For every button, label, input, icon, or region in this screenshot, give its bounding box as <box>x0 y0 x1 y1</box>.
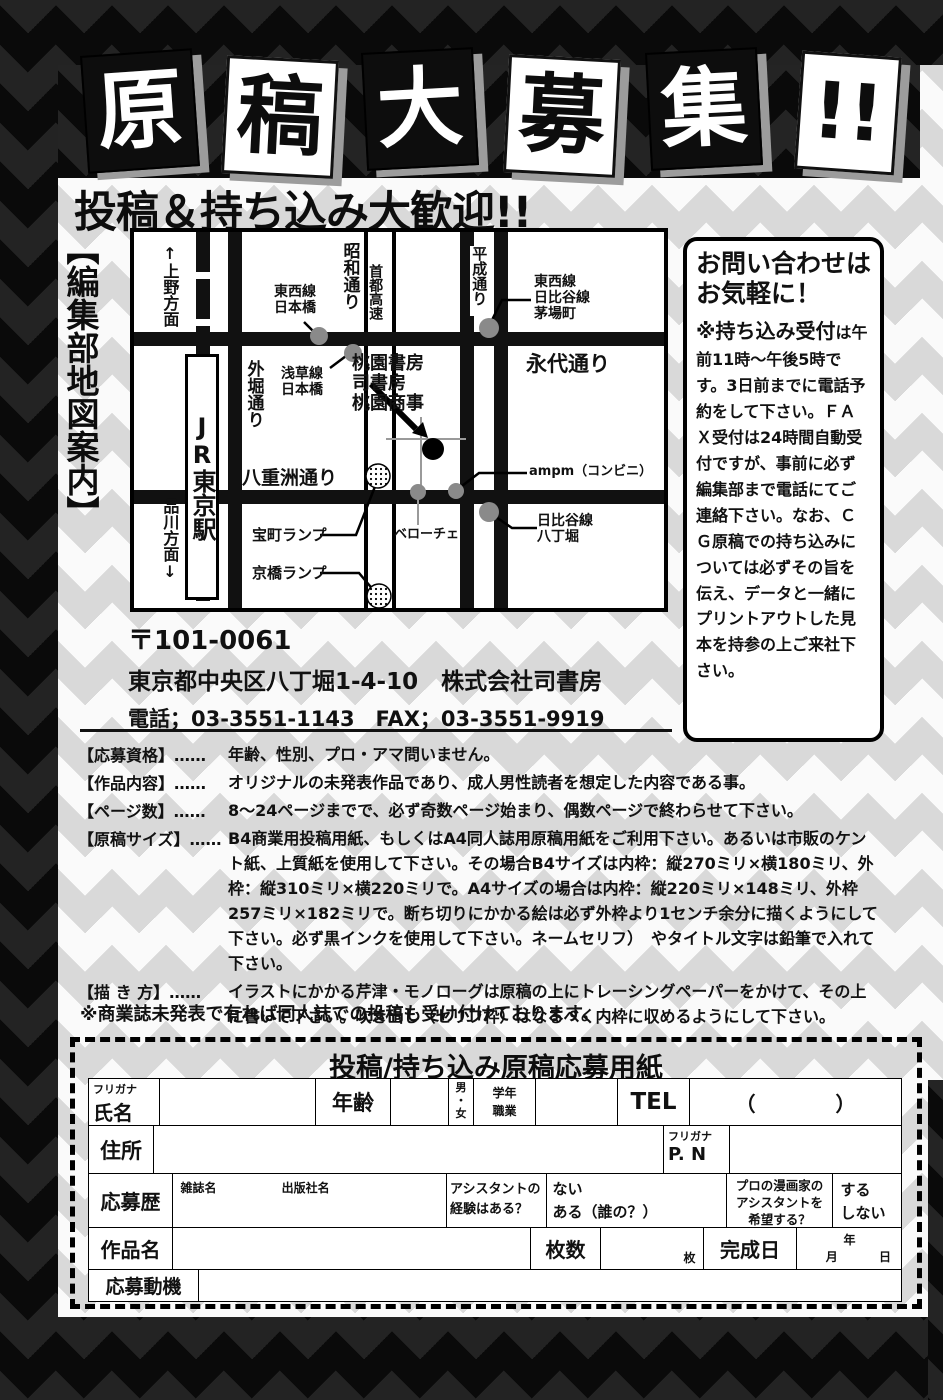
name-label: 氏名 <box>93 1097 155 1126</box>
title-char-4: 募 <box>517 71 607 161</box>
map-label-eitai-dori: 永代通り <box>526 352 610 376</box>
title-char-1: 原 <box>94 65 186 157</box>
spec-text: オリジナルの未発表作品であり、成人男性読者を想定した内容である事。 <box>228 770 882 795</box>
assistant-question-cell: アシスタントの 経験はある？ <box>446 1173 547 1228</box>
title-char-5: 集 <box>659 64 749 154</box>
grade-job-input-cell[interactable] <box>535 1078 618 1126</box>
spec-text: B4商業用投稿用紙、もしくはA4同人誌用原稿用紙をご利用下さい。あるいは市販のケ… <box>228 826 882 976</box>
title-char-6: !! <box>810 72 886 155</box>
title-card-6: !! <box>794 51 902 176</box>
work-title-input-cell[interactable] <box>172 1227 532 1271</box>
map-label-shuto-kosoku: 首都高速 <box>367 264 383 334</box>
tel-label-cell: TEL <box>617 1078 691 1126</box>
spec-label: 【原稿サイズ】…… <box>78 826 228 976</box>
map-label-kyobashi-ramp: 京橋ランプ <box>252 565 327 582</box>
map-label-ampm: ampm（コンビニ） <box>529 465 652 480</box>
spec-text: 8～24ページまでで、必ず奇数ページ始まり、偶数ページで終わらせて下さい。 <box>228 798 882 823</box>
history-label-cell: 応募歴 <box>88 1173 173 1228</box>
contact-title-line1: お問い合わせは <box>696 249 871 279</box>
spec-label: 【作品内容】…… <box>78 770 228 795</box>
history-input-cell[interactable]: 雑誌名 出版社名 <box>172 1173 448 1228</box>
pages-input-cell[interactable]: 枚 <box>600 1227 705 1271</box>
name-input-cell[interactable] <box>159 1078 317 1126</box>
area-map: JR東京駅 ↑上野方面 品川方面↓ 昭和通り 外堀通り 首都高速 平成通り 永代… <box>130 228 668 612</box>
map-label-asakusa-nihonbashi: 浅草線 日本橋 <box>281 366 323 398</box>
title-char-3: 大 <box>375 64 465 154</box>
map-label-yaesu-dori: 八重洲通り <box>242 468 337 490</box>
map-label-office: 桃園書房 司書房 桃園商事 <box>352 354 424 413</box>
contact-body-text: は午前11時～午後5時です。3日前までに電話予約をして下さい。ＦＡＸ受付は24時… <box>696 323 867 680</box>
pn-furigana-label: フリガナ <box>668 1128 725 1144</box>
map-label-sotobori-dori: 外堀通り <box>243 360 263 440</box>
map-label-takaracho-ramp: 宝町ランプ <box>252 527 327 544</box>
furigana-label: フリガナ <box>93 1081 155 1097</box>
assistant-answer-cell[interactable]: ない ある（誰の？） <box>546 1173 728 1228</box>
pen-name-label-cell: フリガナ P. N <box>663 1125 730 1175</box>
completion-label-cell: 完成日 <box>703 1227 797 1271</box>
pn-label: P. N <box>668 1144 725 1165</box>
contact-body: ※持ち込み受付は午前11時～午後5時です。3日前までに電話予約をして下さい。ＦＡ… <box>696 315 871 684</box>
map-label-tozai-nihonbashi: 東西線 日本橋 <box>274 284 316 316</box>
map-label-hatchobori: 日比谷線 八丁堀 <box>537 513 593 545</box>
motivation-input-cell[interactable] <box>198 1269 903 1302</box>
address-label-cell: 住所 <box>88 1125 154 1175</box>
address-line: 東京都中央区八丁堀1-4-10 株式会社司書房 <box>128 662 678 696</box>
pages-label-cell: 枚数 <box>530 1227 601 1271</box>
postal-code: 〒101-0061 <box>128 620 678 657</box>
pro-assistant-question-cell: プロの漫画家の アシスタントを 希望する？ <box>726 1173 833 1228</box>
date-day-label: 日 <box>879 1248 891 1265</box>
address-input-cell[interactable] <box>153 1125 665 1175</box>
map-jr-station-label: JR東京駅 <box>190 413 214 541</box>
doujinshi-note: ※商業誌未発表で有れば同人誌での投稿も受け付けております。 <box>80 1000 599 1026</box>
name-label-cell: フリガナ 氏名 <box>88 1078 160 1126</box>
title-card-4: 募 <box>503 54 621 178</box>
map-direction-ueno: ↑上野方面 <box>160 244 178 339</box>
form-table: フリガナ 氏名 年齢 男 ・ 女 学年 職業 TEL （ ） 住所 フリガナ P… <box>88 1078 902 1302</box>
map-jr-station-box: JR東京駅 <box>185 354 219 600</box>
gender-cell[interactable]: 男 ・ 女 <box>448 1078 474 1126</box>
publisher-label: 出版社名 <box>282 1181 330 1195</box>
spec-label: 【応募資格】…… <box>78 742 228 767</box>
tel-input-cell[interactable]: （ ） <box>689 1078 902 1126</box>
map-side-label: 【編集部地図案内】 <box>64 232 97 542</box>
age-input-cell[interactable] <box>390 1078 450 1126</box>
map-label-veloce: ベローチェ <box>394 528 459 543</box>
spec-label: 【ページ数】…… <box>78 798 228 823</box>
pro-assistant-answer-cell[interactable]: する しない <box>832 1173 903 1228</box>
title-card-3: 大 <box>361 47 479 171</box>
date-year-label: 年 <box>844 1231 856 1248</box>
title-card-5: 集 <box>645 47 763 171</box>
map-direction-shinagawa: 品川方面↓ <box>160 498 178 603</box>
map-label-showa-dori: 昭和通り <box>339 242 359 332</box>
divider-line <box>80 729 672 732</box>
contact-title-line2: お気軽に！ <box>696 279 871 309</box>
age-label-cell: 年齢 <box>315 1078 391 1126</box>
date-month-label: 月 <box>826 1248 838 1265</box>
contact-body-lead: ※持ち込み受付 <box>696 319 835 343</box>
submission-specs: 【応募資格】……年齢、性別、プロ・アマ問いません。 【作品内容】……オリジナルの… <box>78 742 882 1029</box>
pen-name-input-cell[interactable] <box>729 1125 903 1175</box>
spec-text: 年齢、性別、プロ・アマ問いません。 <box>228 742 882 767</box>
scanned-page: 原 稿 大 募 集 !! 投稿＆持ち込み大歓迎!! 【編集部地図案内】 <box>0 0 943 1400</box>
work-title-label-cell: 作品名 <box>88 1227 173 1271</box>
magazine-label: 雑誌名 <box>181 1181 217 1195</box>
page-border-right <box>928 1080 943 1400</box>
grade-job-cell: 学年 職業 <box>473 1078 537 1126</box>
pages-unit-label: 枚 <box>683 1249 695 1266</box>
map-label-kayabacho: 東西線 日比谷線 茅場町 <box>534 274 590 322</box>
address-block: 〒101-0061 東京都中央区八丁堀1-4-10 株式会社司書房 電話；03-… <box>128 620 678 733</box>
title-char-2: 稿 <box>235 72 325 162</box>
motivation-label-cell: 応募動機 <box>88 1269 199 1302</box>
title-card-1: 原 <box>80 48 200 174</box>
map-label-heisei-dori: 平成通り <box>470 246 487 316</box>
contact-box: お問い合わせは お気軽に！ ※持ち込み受付は午前11時～午後5時です。3日前まで… <box>683 237 884 742</box>
title-card-2: 稿 <box>221 55 339 179</box>
completion-date-cell[interactable]: 年 月 日 <box>796 1227 903 1271</box>
